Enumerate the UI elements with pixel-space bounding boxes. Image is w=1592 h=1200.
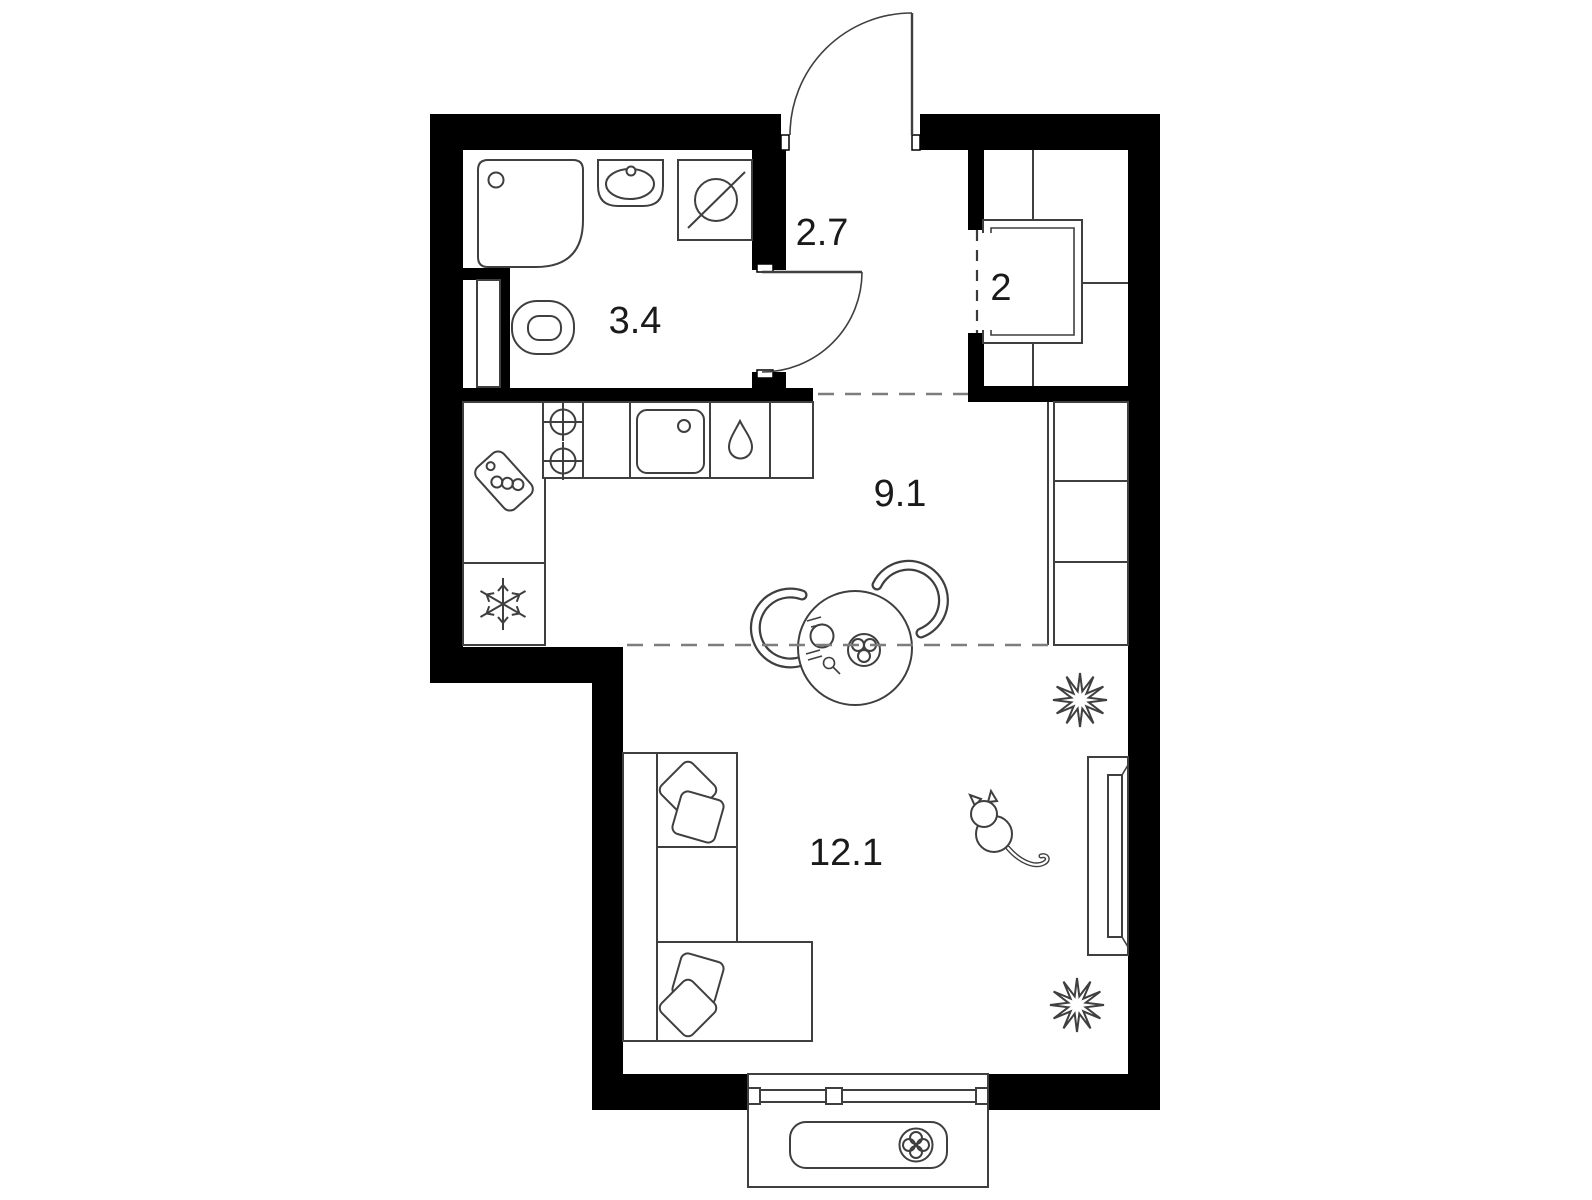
counter-left-column (463, 402, 545, 563)
closet-left-wall-upper (968, 147, 984, 230)
kitchen-sink (637, 410, 704, 473)
window-mullion (826, 1088, 842, 1104)
floor-plan-svg: 3.4 2.7 2 9.1 12.1 (0, 0, 1592, 1200)
dining-table (798, 591, 912, 705)
hallway-area-label: 2.7 (796, 212, 849, 254)
counter-segment-2 (770, 402, 813, 478)
window-mullion (748, 1088, 760, 1104)
entrance-jamb-right (912, 135, 920, 150)
entrance-jamb-left (781, 135, 789, 150)
toilet-bowl (512, 301, 574, 354)
bathroom-right-wall (752, 148, 786, 270)
cat-head (971, 801, 997, 827)
wardrobe-area-label: 2 (990, 267, 1011, 309)
top-wall-right (920, 114, 1160, 150)
plant-icon (1050, 978, 1104, 1032)
shaft-wall-v (500, 268, 510, 388)
dishwasher-cabinet (710, 402, 770, 478)
air-conditioner (790, 1122, 947, 1168)
counter-segment-1 (583, 402, 630, 478)
closet-left-wall-lower (968, 333, 984, 388)
window-mullion (976, 1088, 988, 1104)
entrance-door-swing-arc (790, 13, 912, 135)
left-wall-lower (592, 647, 623, 1110)
washbasin-faucet (627, 167, 636, 176)
tv-screen (1108, 775, 1122, 937)
entrance-door (790, 13, 912, 135)
bottom-wall-right (988, 1074, 1160, 1110)
bathroom-fixtures (477, 160, 752, 387)
living-room-area-label: 12.1 (809, 832, 883, 874)
plant-icon (1053, 673, 1107, 727)
right-wall (1128, 114, 1160, 1110)
closet-bottom-wall (968, 386, 1160, 402)
bathroom-bottom-wall (463, 388, 813, 402)
sofa-seat-2 (657, 847, 737, 942)
top-wall-left (430, 114, 781, 150)
cat (970, 791, 1047, 865)
shower-drain (489, 173, 504, 188)
tall-cabinet-column (1054, 402, 1128, 645)
floor-plan: 3.4 2.7 2 9.1 12.1 (0, 0, 1592, 1200)
left-wall-upper (430, 114, 463, 683)
kitchen-area-label: 9.1 (874, 473, 927, 515)
balcony (748, 1074, 988, 1187)
kitchen-fixtures (463, 402, 1128, 645)
bathroom-door-swing-arc (762, 272, 862, 372)
bathroom-area-label: 3.4 (609, 300, 662, 342)
bottom-wall-left (592, 1074, 748, 1110)
plumbing-shaft (477, 280, 500, 387)
dining-set (755, 565, 943, 705)
bathroom-door (762, 272, 862, 372)
sofa-backrest (623, 753, 657, 1041)
